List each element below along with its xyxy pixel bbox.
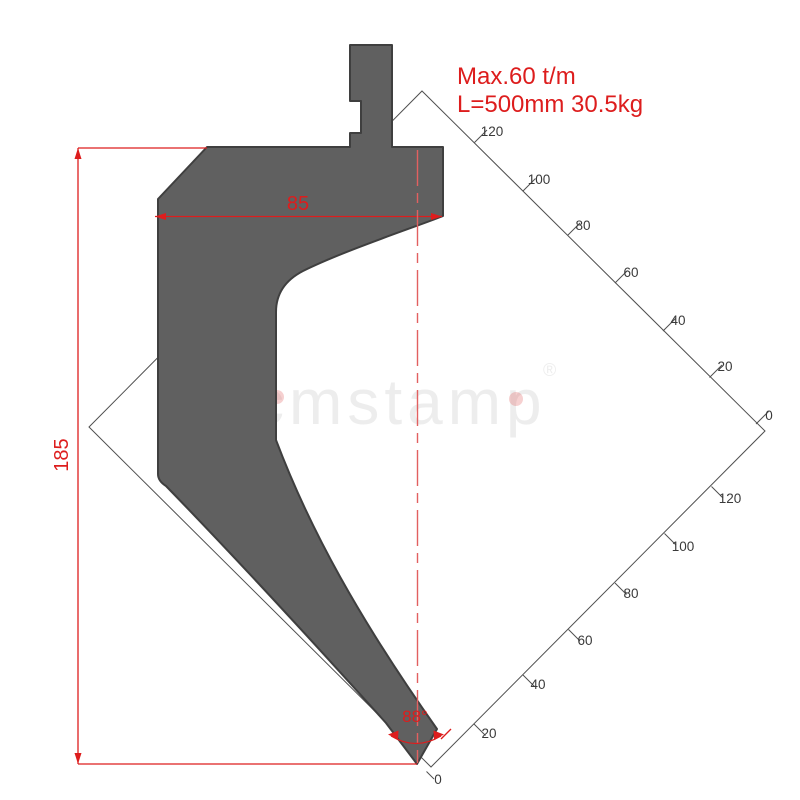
grid-label: 120 <box>719 491 742 506</box>
watermark-dot <box>509 392 523 406</box>
max-load-text: Max.60 t/m <box>457 63 576 90</box>
grid-label: 20 <box>481 726 496 741</box>
grid-label: 100 <box>672 539 695 554</box>
watermark-reg-icon: ® <box>543 360 556 380</box>
grid-label: 40 <box>670 313 685 328</box>
grid-label: 40 <box>530 677 545 692</box>
arrowhead-down-icon <box>75 753 82 764</box>
grid-label: 80 <box>575 218 590 233</box>
grid-label: 0 <box>434 772 442 787</box>
grid-label: 80 <box>623 586 638 601</box>
drawing-canvas: 120 100 80 60 40 20 0 120 100 80 60 40 2… <box>0 0 800 800</box>
grid-label: 120 <box>481 124 504 139</box>
length-weight-text: L=500mm 30.5kg <box>457 91 643 118</box>
watermark-text: cmstamp <box>252 366 547 438</box>
grid-label: 60 <box>623 265 638 280</box>
grid-label: 60 <box>577 633 592 648</box>
watermark: cmstamp ® <box>252 360 556 438</box>
tip-angle-label: 88° <box>402 707 428 726</box>
grid-label: 0 <box>765 408 773 423</box>
punch-tool-drawing: 120 100 80 60 40 20 0 120 100 80 60 40 2… <box>0 0 800 800</box>
spec-annotations: Max.60 t/m L=500mm 30.5kg <box>457 63 643 118</box>
grid-ticks-se <box>427 487 724 780</box>
arrowhead-up-icon <box>75 148 82 159</box>
grid-labels-se: 120 100 80 60 40 20 0 <box>434 491 741 787</box>
grid-label: 20 <box>717 359 732 374</box>
dim-width-label: 85 <box>287 193 309 215</box>
grid-label: 100 <box>528 172 551 187</box>
dim-height-label: 185 <box>51 438 73 471</box>
